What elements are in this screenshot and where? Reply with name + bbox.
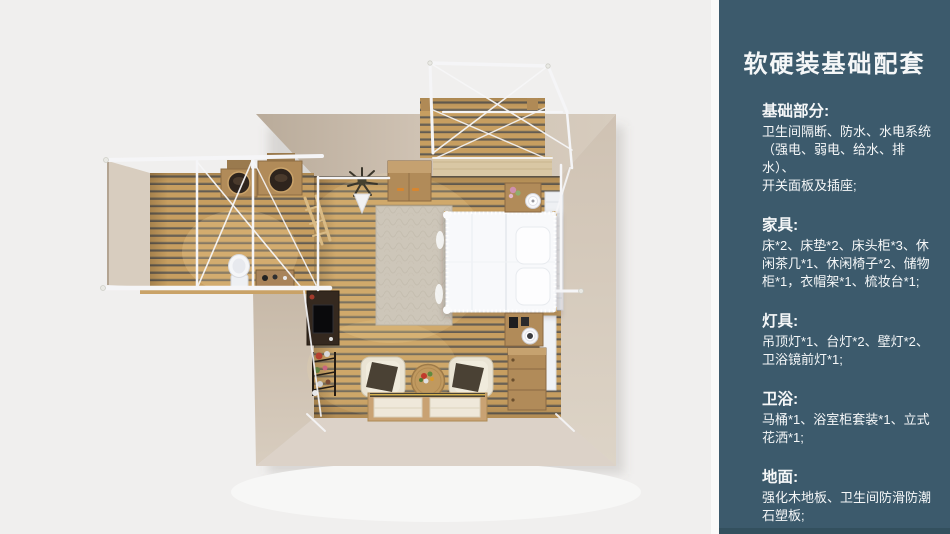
section-lighting: 灯具: 吊顶灯*1、台灯*2、壁灯*2、 卫浴镜前灯*1;	[762, 312, 936, 369]
wardrobe-handle	[412, 188, 419, 191]
section-bathroom-heading: 卫浴:	[762, 390, 936, 409]
canopy-drape	[436, 231, 444, 249]
toilet	[229, 255, 250, 290]
section-flooring: 地面: 强化木地板、卫生间防滑防潮 石塑板;	[762, 468, 936, 525]
section-bathroom: 卫浴: 马桶*1、浴室柜套装*1、立式 花洒*1;	[762, 390, 936, 447]
tatami-platform	[368, 393, 487, 421]
section-flooring-heading: 地面:	[762, 468, 936, 487]
armchair-right	[449, 357, 493, 397]
canopy-bed	[435, 211, 561, 317]
section-lighting-heading: 灯具:	[762, 312, 936, 331]
wardrobe-cabinet	[388, 161, 431, 201]
photo-frame	[521, 317, 529, 326]
canopy-foot-right	[527, 98, 538, 110]
canopy-drape	[435, 284, 443, 304]
bathroom	[108, 153, 332, 294]
section-furniture-heading: 家具:	[762, 216, 936, 235]
floorplan-svg	[0, 0, 719, 534]
nightstand-bottom	[505, 313, 543, 346]
floor-halo	[231, 462, 641, 522]
canopy-foot-left	[421, 100, 431, 111]
section-furniture: 家具: 床*2、床垫*2、床头柜*3、休 闲茶几*1、休闲椅子*2、储物 柜*1…	[762, 216, 936, 291]
section-basics-heading: 基础部分:	[762, 102, 936, 121]
flower-vase	[510, 187, 516, 193]
info-sidebar: 软硬装基础配套 基础部分: 卫生间隔断、防水、水电系统 （强电、弱电、给水、排水…	[719, 0, 950, 534]
rug	[376, 206, 452, 325]
armchair-left	[361, 357, 405, 397]
section-furniture-body: 床*2、床垫*2、床头柜*3、休 闲茶几*1、休闲椅子*2、储物 柜*1，衣帽架…	[762, 237, 936, 291]
slide: 软硬装基础配套 基础部分: 卫生间隔断、防水、水电系统 （强电、弱电、给水、排水…	[0, 0, 950, 534]
section-basics: 基础部分: 卫生间隔断、防水、水电系统 （强电、弱电、给水、排水）、 开关面板及…	[762, 102, 936, 195]
vanity-mirror-left	[227, 160, 251, 169]
section-flooring-body: 强化木地板、卫生间防滑防潮 石塑板;	[762, 489, 936, 525]
panel-separator	[711, 0, 719, 534]
sidebar-bottom-strip	[719, 528, 950, 534]
wall-bottom	[256, 418, 616, 466]
sidebar-title: 软硬装基础配套	[719, 0, 950, 80]
tv-desk	[307, 291, 339, 345]
floorplan-image	[0, 0, 719, 534]
section-basics-body: 卫生间隔断、防水、水电系统 （强电、弱电、给水、排水）、 开关面板及插座;	[762, 123, 936, 195]
photo-frame	[509, 317, 518, 328]
section-lighting-body: 吊顶灯*1、台灯*2、壁灯*2、 卫浴镜前灯*1;	[762, 333, 936, 369]
wardrobe-handle	[397, 188, 404, 191]
pillow	[516, 227, 550, 264]
nightstand-top	[505, 183, 541, 212]
bathroom-left-wall	[108, 161, 150, 287]
dresser	[508, 348, 546, 410]
pillow	[516, 268, 550, 305]
section-bathroom-body: 马桶*1、浴室柜套装*1、立式 花洒*1;	[762, 411, 936, 447]
tv-screen	[313, 305, 333, 333]
